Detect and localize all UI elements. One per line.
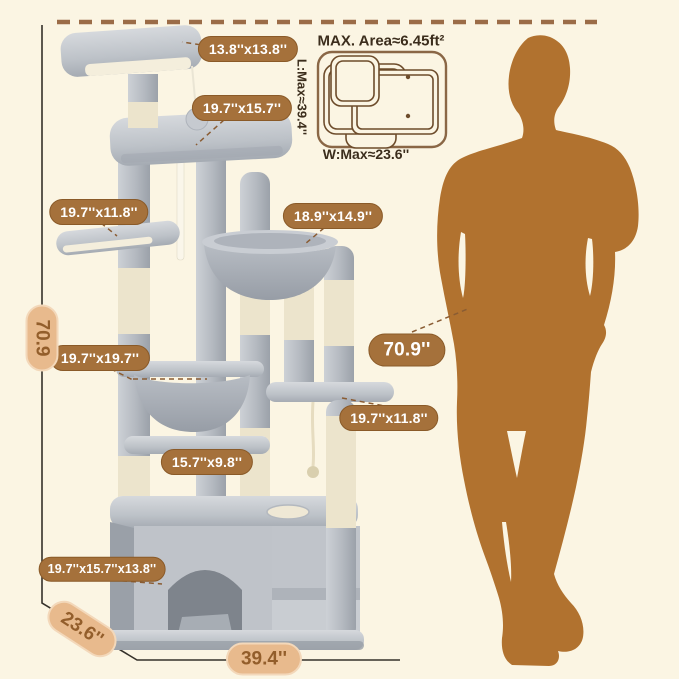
condo-roof [110,496,358,528]
badge-lower-plank-size: 15.7''x9.8'' [161,449,253,475]
max-area-label: MAX. Area≈6.45ft² [318,34,445,49]
pill-width: 39.4'' [226,643,302,676]
width-max-label: W:Max≈23.6'' [323,147,409,161]
badge-condo-size: 19.7''x15.7''x13.8'' [39,557,166,582]
badge-right-platform-size: 19.7''x11.8'' [339,405,438,431]
condo-side [110,522,134,642]
footprint-diagram [318,52,446,148]
platform-right [266,382,394,402]
length-max-label: L:Max≈39.4'' [296,59,309,135]
hammock-middle [134,375,250,432]
man-silhouette [437,35,638,666]
condo-roof-hole [267,505,309,519]
pill-height: 70.9 [26,305,59,372]
hanging-teaser-toy [177,156,184,260]
badge-middle-hammock-size: 19.7''x19.7'' [50,345,150,371]
badge-top-perch-size: 13.8''x13.8'' [198,36,298,62]
badge-overall-height: 70.9'' [368,334,445,367]
rope-toy [312,402,313,466]
product-dimension-diagram: MAX. Area≈6.45ft² L:Max≈39.4'' W:Max≈23.… [0,0,679,679]
platform-top-perch [60,24,204,78]
badge-right-hammock-size: 18.9''x14.9'' [283,203,383,229]
badge-left-platform-size: 19.7''x11.8'' [49,199,148,225]
badge-upper-platform-size: 19.7''x15.7'' [192,95,292,121]
